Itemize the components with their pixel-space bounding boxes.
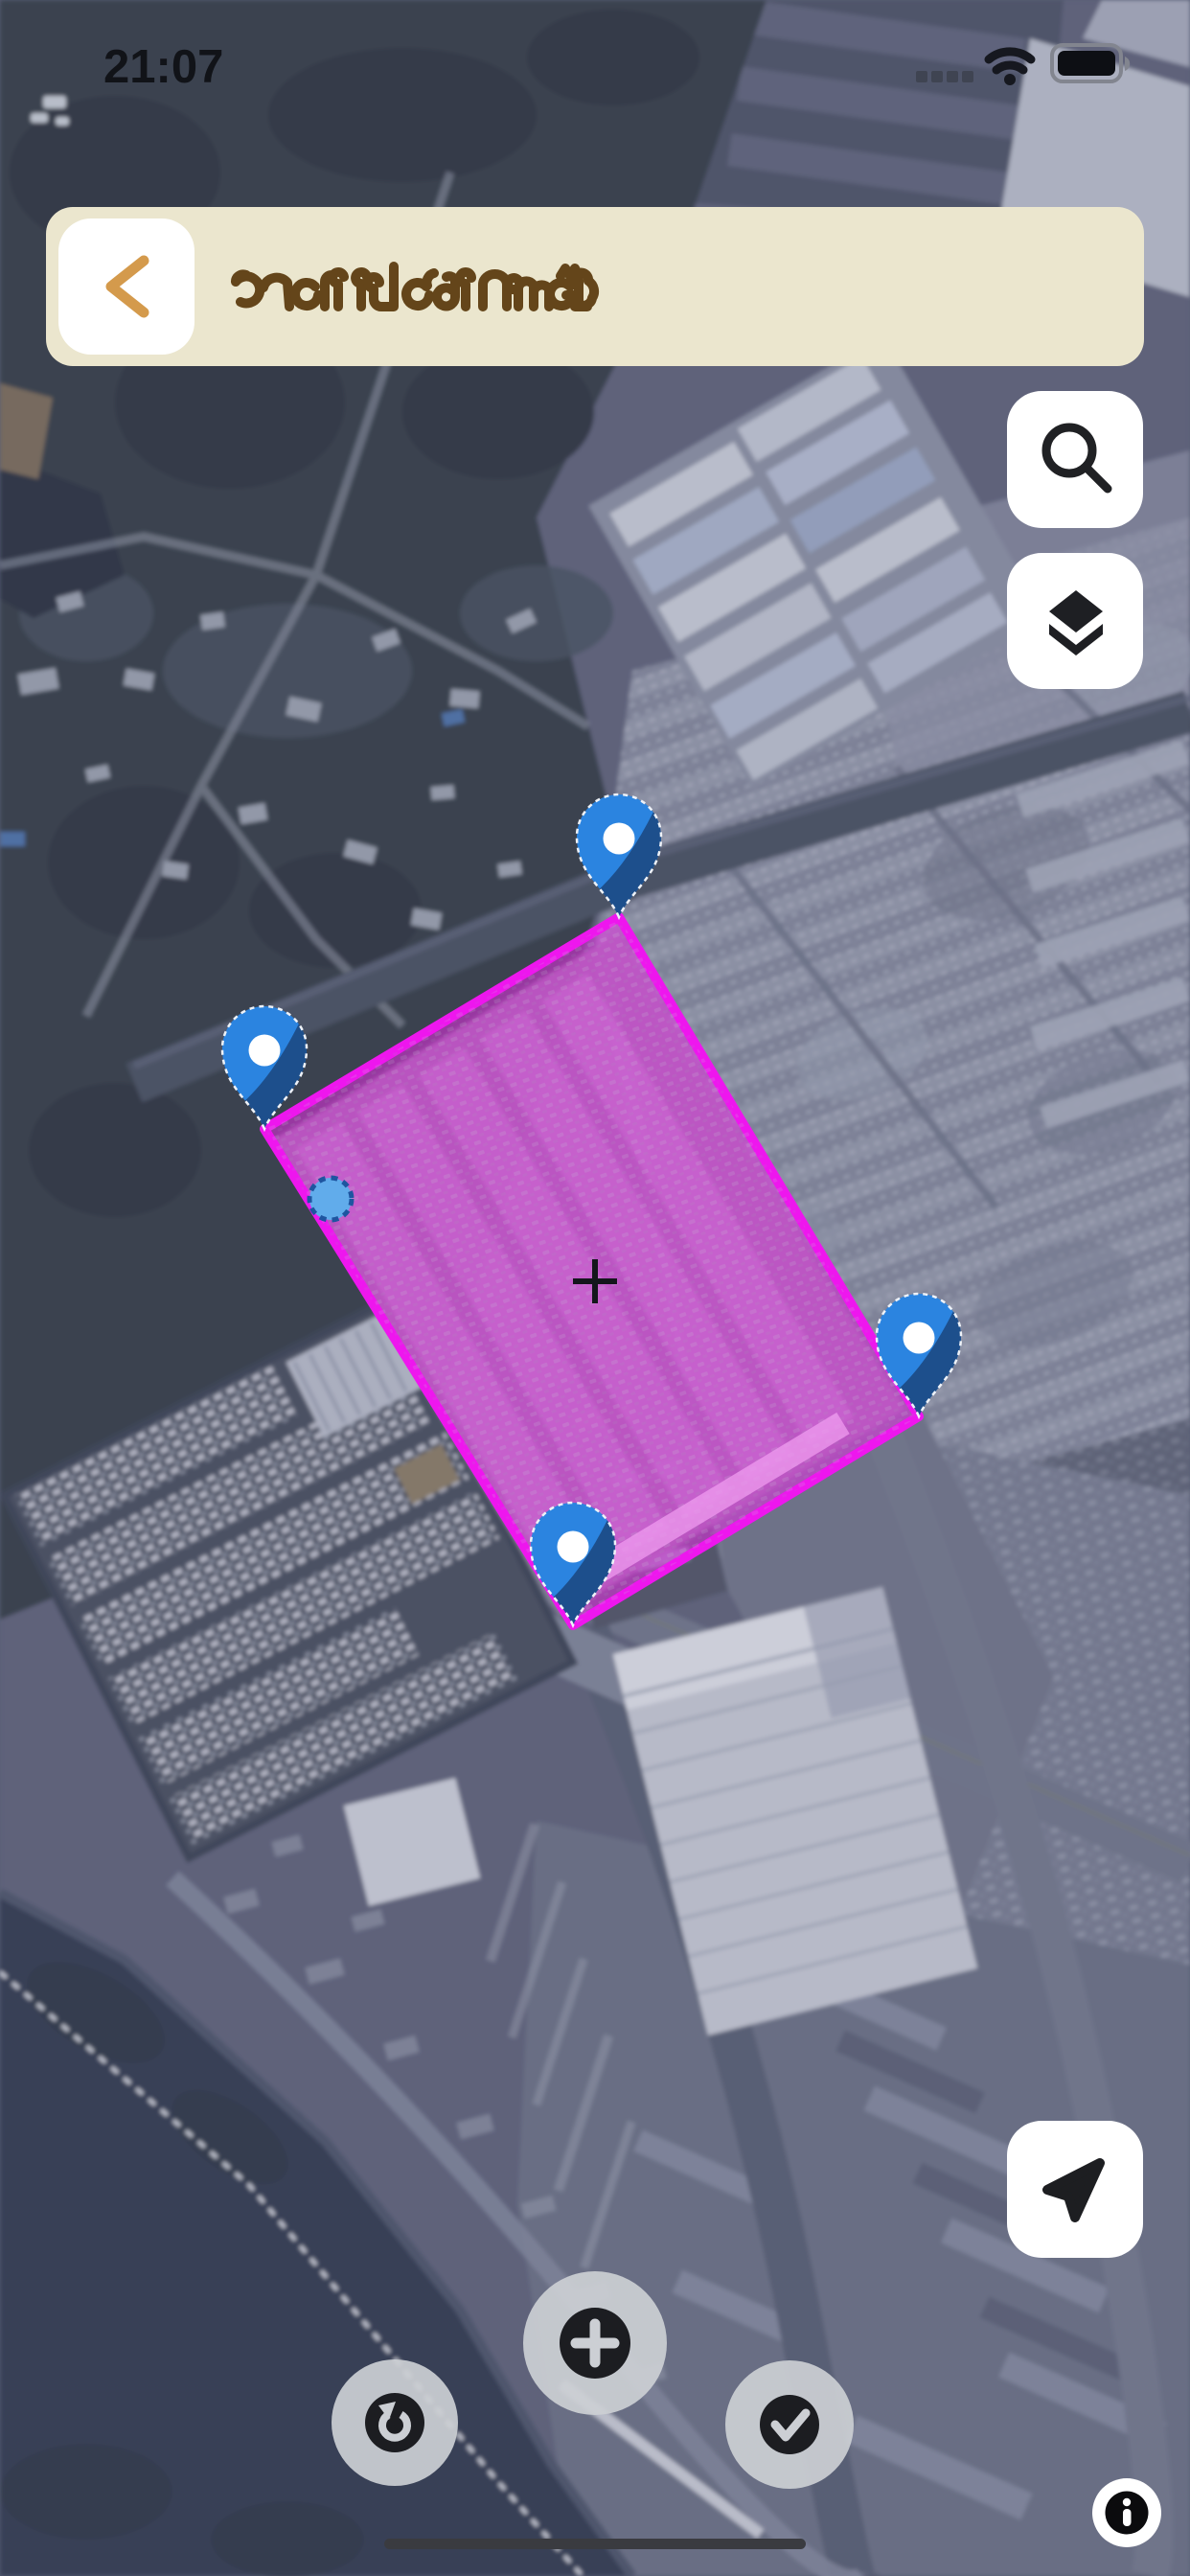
svg-text:21:07: 21:07 xyxy=(103,41,223,93)
